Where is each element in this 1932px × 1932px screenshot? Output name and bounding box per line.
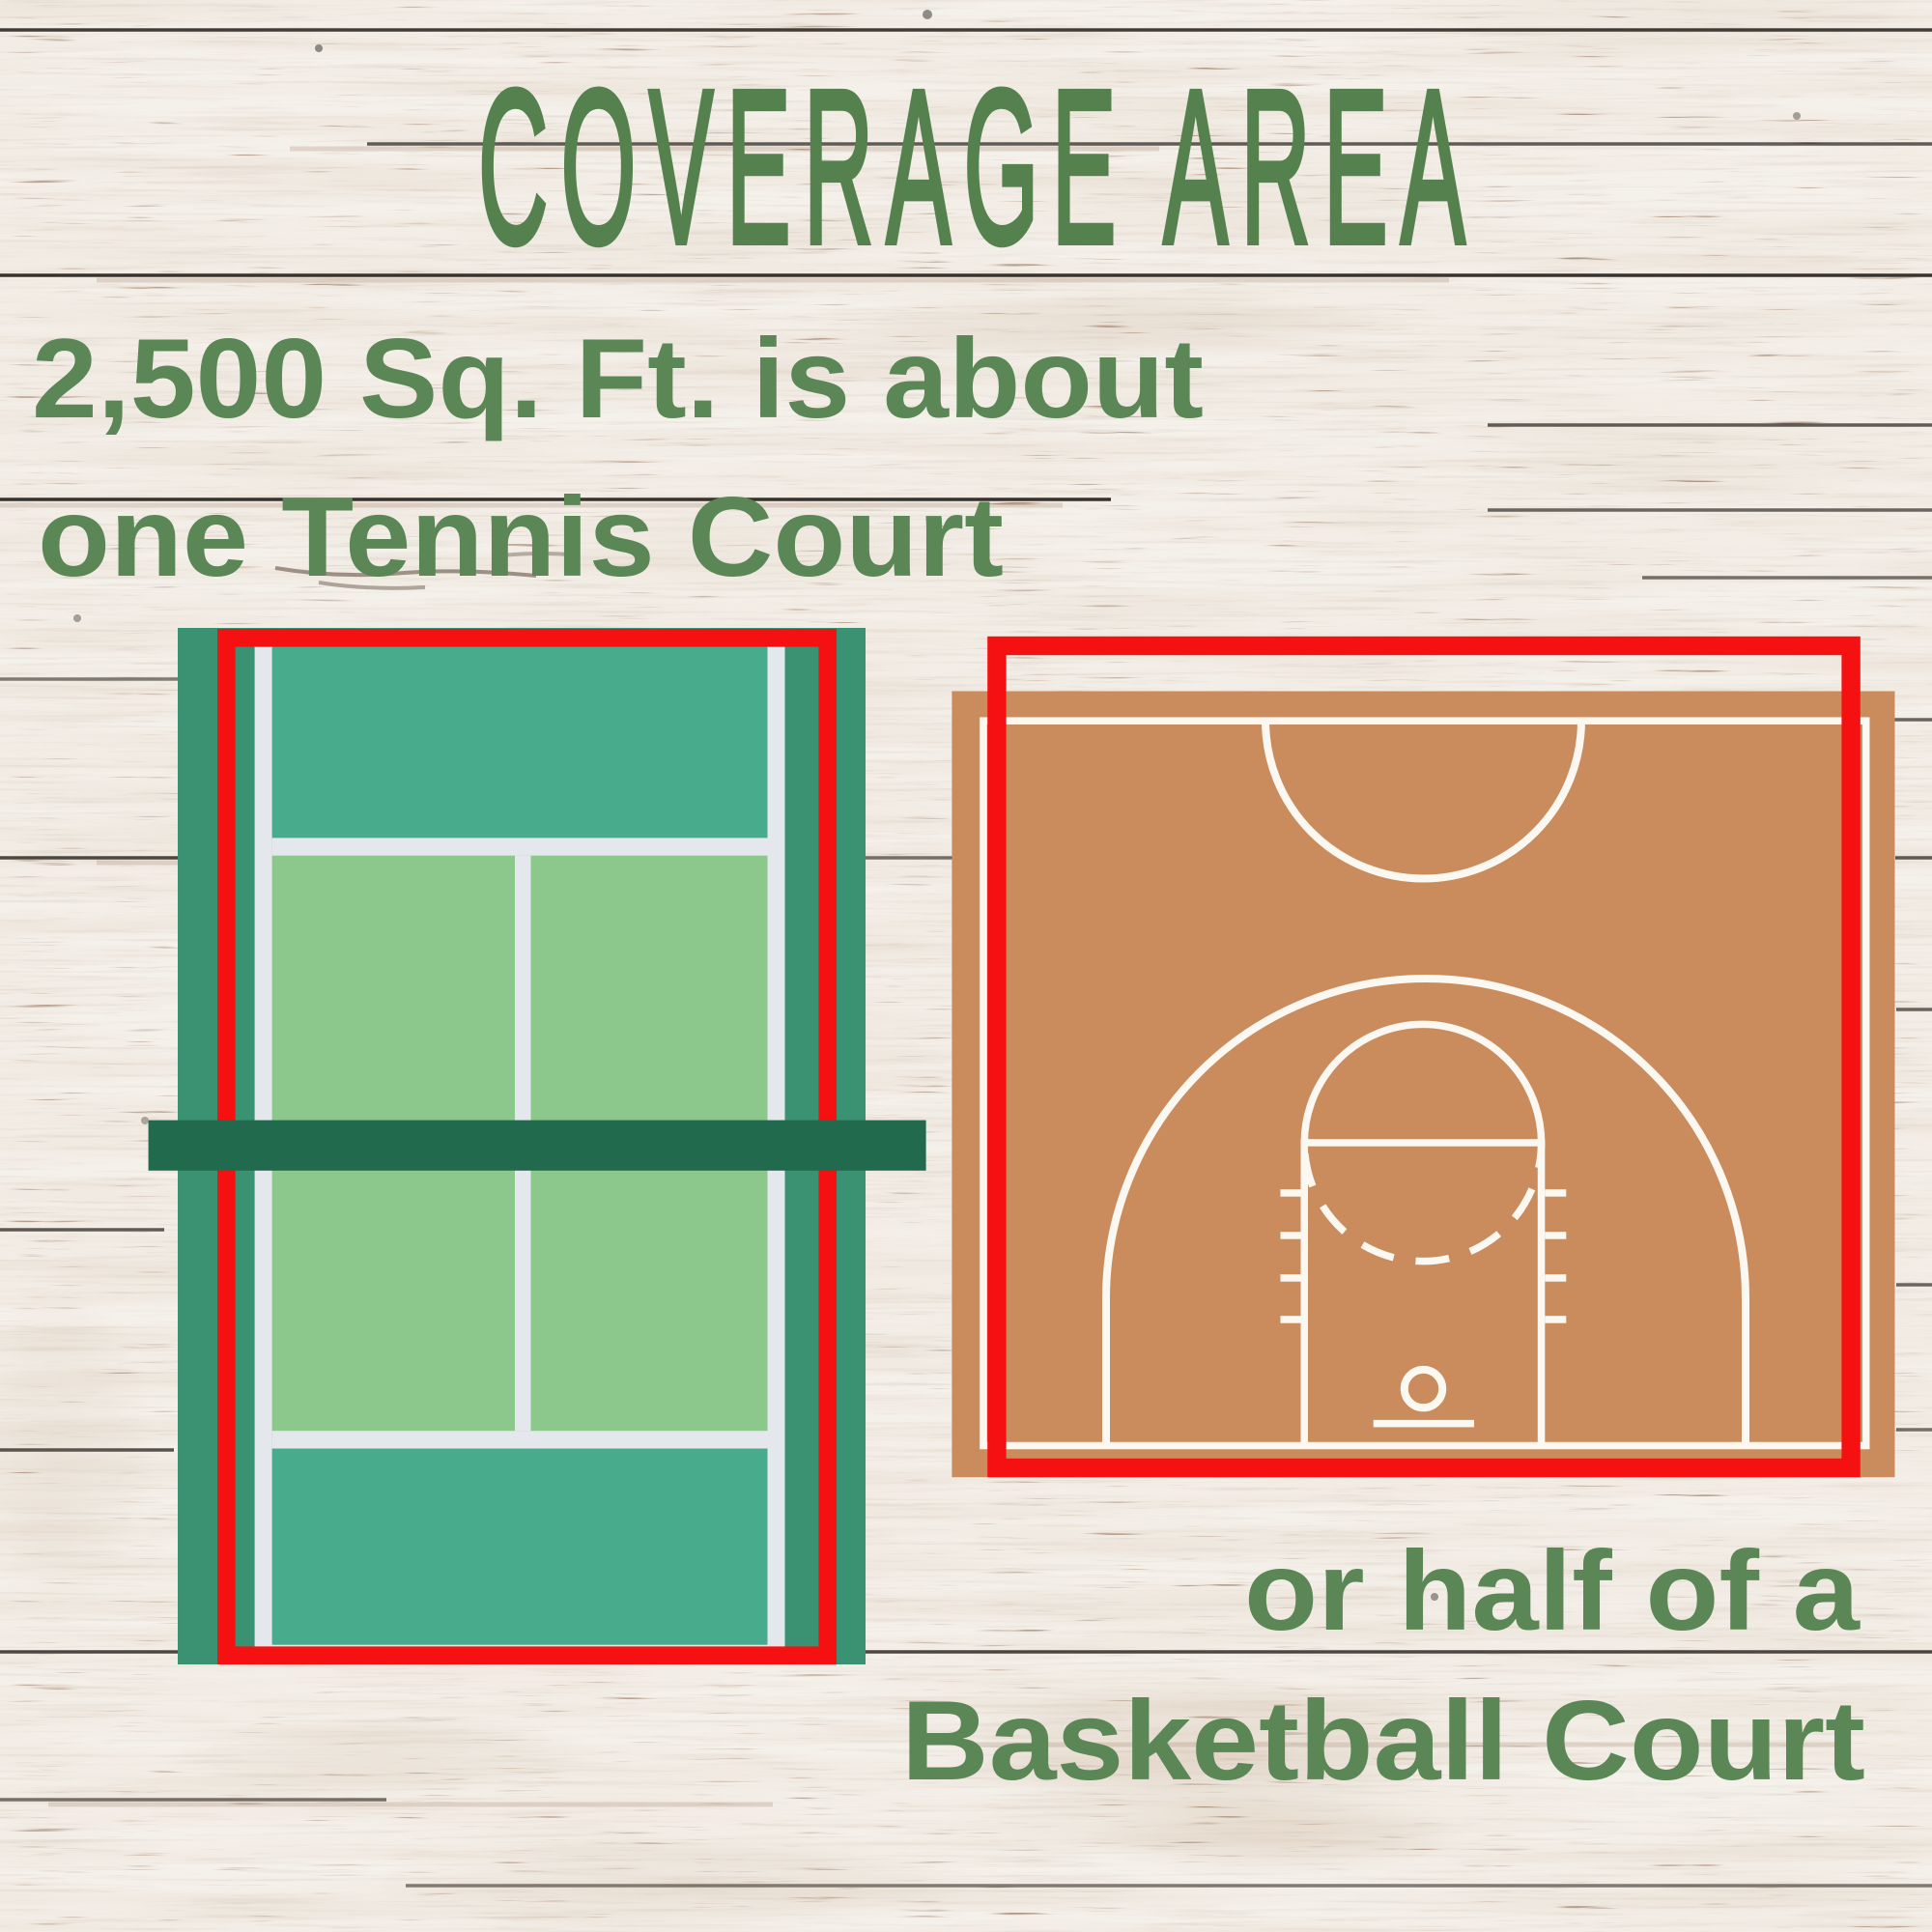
svg-text:one Tennis Court: one Tennis Court [38,473,1004,600]
svg-text:Basketball Court: Basketball Court [901,1677,1865,1804]
svg-text:COVERAGE AREA: COVERAGE AREA [478,45,1478,290]
svg-text:or half of a: or half of a [1244,1527,1861,1654]
svg-text:2,500 Sq. Ft. is about: 2,500 Sq. Ft. is about [32,315,1204,441]
